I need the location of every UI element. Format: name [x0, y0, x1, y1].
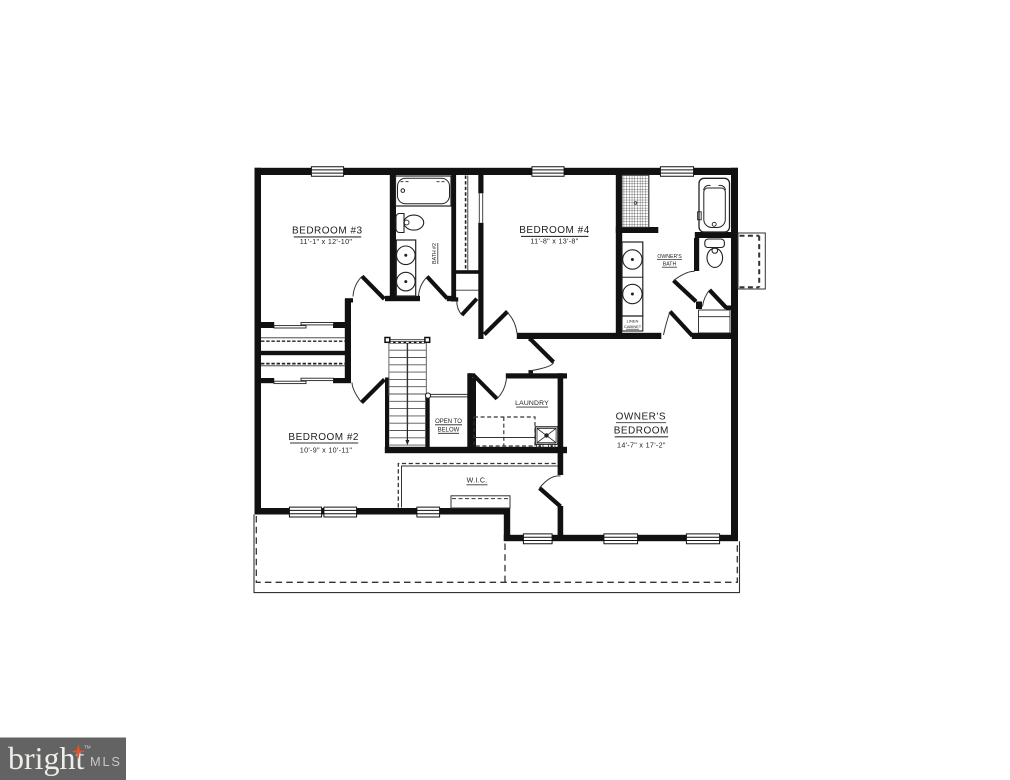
svg-text:MLS: MLS [90, 754, 122, 769]
svg-text:11'-1" x 12'-10": 11'-1" x 12'-10" [300, 237, 353, 246]
svg-text:BEDROOM: BEDROOM [614, 426, 669, 437]
svg-text:LAUNDRY: LAUNDRY [515, 400, 549, 407]
svg-text:W.I.C.: W.I.C. [467, 478, 488, 485]
svg-text:OWNER'S: OWNER'S [616, 411, 666, 422]
svg-text:BEDROOM #2: BEDROOM #2 [288, 432, 359, 443]
svg-text:CABINET: CABINET [624, 324, 642, 329]
svg-text:OWNER'S: OWNER'S [657, 254, 682, 260]
svg-text:11'-8" x 13'-8": 11'-8" x 13'-8" [530, 237, 578, 246]
svg-text:10'-9" x 10'-11": 10'-9" x 10'-11" [300, 445, 353, 454]
svg-text:BATH: BATH [663, 262, 677, 268]
svg-text:TM: TM [84, 745, 91, 750]
svg-text:bright: bright [8, 740, 85, 776]
svg-text:BEDROOM #4: BEDROOM #4 [519, 225, 590, 236]
svg-text:OPEN TO: OPEN TO [435, 419, 462, 425]
svg-text:LINEN: LINEN [627, 319, 639, 324]
svg-text:14'-7" x 17'-2": 14'-7" x 17'-2" [617, 441, 666, 450]
svg-text:BEDROOM #3: BEDROOM #3 [292, 226, 363, 237]
svg-text:BELOW: BELOW [438, 428, 460, 434]
svg-text:BATH #2: BATH #2 [432, 243, 438, 264]
